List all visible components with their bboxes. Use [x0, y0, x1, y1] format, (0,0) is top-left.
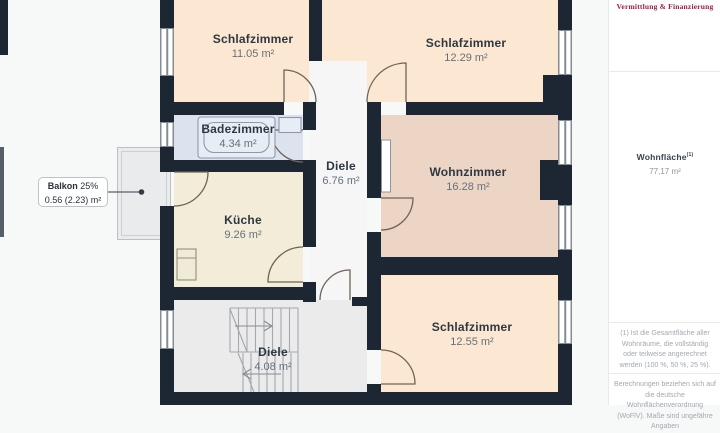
room-area: 4.08 m²	[254, 360, 291, 375]
footnote-2: Berechnungen beziehen sich auf die deuts…	[614, 380, 716, 433]
room-area: 16.28 m²	[429, 180, 506, 195]
room-area: 11.05 m²	[213, 47, 293, 62]
room-label-schlafzimmer-3: Schlafzimmer 12.55 m²	[432, 319, 512, 350]
living-area-value: 77,17 m²	[609, 167, 720, 176]
room-area: 6.76 m²	[322, 174, 359, 189]
room-area: 4.34 m²	[201, 137, 274, 152]
room-label-diele-1: Diele 6.76 m²	[322, 158, 359, 189]
room-label-diele-2: Diele 4.08 m²	[254, 344, 291, 375]
divider	[609, 373, 720, 374]
room-label-schlafzimmer-2: Schlafzimmer 12.29 m²	[426, 35, 506, 66]
door-balkon	[174, 172, 208, 206]
room-name: Küche	[224, 212, 262, 228]
room-label-badezimmer: Badezimmer 4.34 m²	[201, 121, 274, 152]
door-schlafzimmer-2	[367, 63, 406, 102]
radiator	[382, 140, 391, 192]
balcony-area-value: 0.56 (2.23) m²	[39, 193, 107, 207]
room-label-wohnzimmer: Wohnzimmer 16.28 m²	[429, 164, 506, 195]
room-name: Wohnzimmer	[429, 164, 506, 180]
living-area-footnote-ref: (1)	[687, 152, 694, 158]
info-sidebar: Vermittlung & Finanzierung Wohnfläche(1)…	[608, 0, 720, 405]
balcony-marker-dot	[139, 189, 145, 195]
logo-tagline: Vermittlung & Finanzierung	[609, 2, 720, 11]
living-area-label: Wohnfläche(1)	[609, 152, 720, 162]
room-label-schlafzimmer-1: Schlafzimmer 11.05 m²	[213, 31, 293, 62]
room-name: Diele	[322, 158, 359, 174]
divider	[609, 322, 720, 323]
balcony-percent: 25%	[80, 181, 98, 191]
kitchen-unit	[177, 249, 196, 280]
living-area-label-text: Wohnfläche	[637, 152, 687, 162]
door-schlafzimmer-3	[381, 350, 415, 384]
footnote-1: (1) Ist die Gesamtfläche aller Wohnräume…	[614, 329, 716, 371]
door-schlafzimmer-1	[284, 70, 316, 102]
door-kueche	[268, 247, 303, 282]
room-name: Diele	[254, 344, 291, 360]
door-badezimmer	[271, 130, 303, 162]
balcony-callout: Balkon 25% 0.56 (2.23) m²	[38, 177, 108, 207]
room-area: 12.55 m²	[432, 335, 512, 350]
living-area-block: Wohnfläche(1) 77,17 m²	[609, 152, 720, 176]
door-wohnzimmer	[381, 198, 413, 230]
door-diele-2	[320, 270, 350, 300]
room-name: Schlafzimmer	[213, 31, 293, 47]
room-name: Schlafzimmer	[426, 35, 506, 51]
bath-sink	[279, 118, 301, 133]
room-name: Badezimmer	[201, 121, 274, 137]
room-name: Schlafzimmer	[432, 319, 512, 335]
door-arcs	[174, 63, 415, 384]
room-area: 9.26 m²	[224, 228, 262, 243]
balcony-callout-line1: Balkon 25%	[39, 179, 107, 193]
balcony-callout-leader	[108, 189, 144, 195]
room-area: 12.29 m²	[426, 51, 506, 66]
balcony-label: Balkon	[48, 181, 78, 191]
room-label-kueche: Küche 9.26 m²	[224, 212, 262, 243]
divider	[609, 71, 720, 72]
